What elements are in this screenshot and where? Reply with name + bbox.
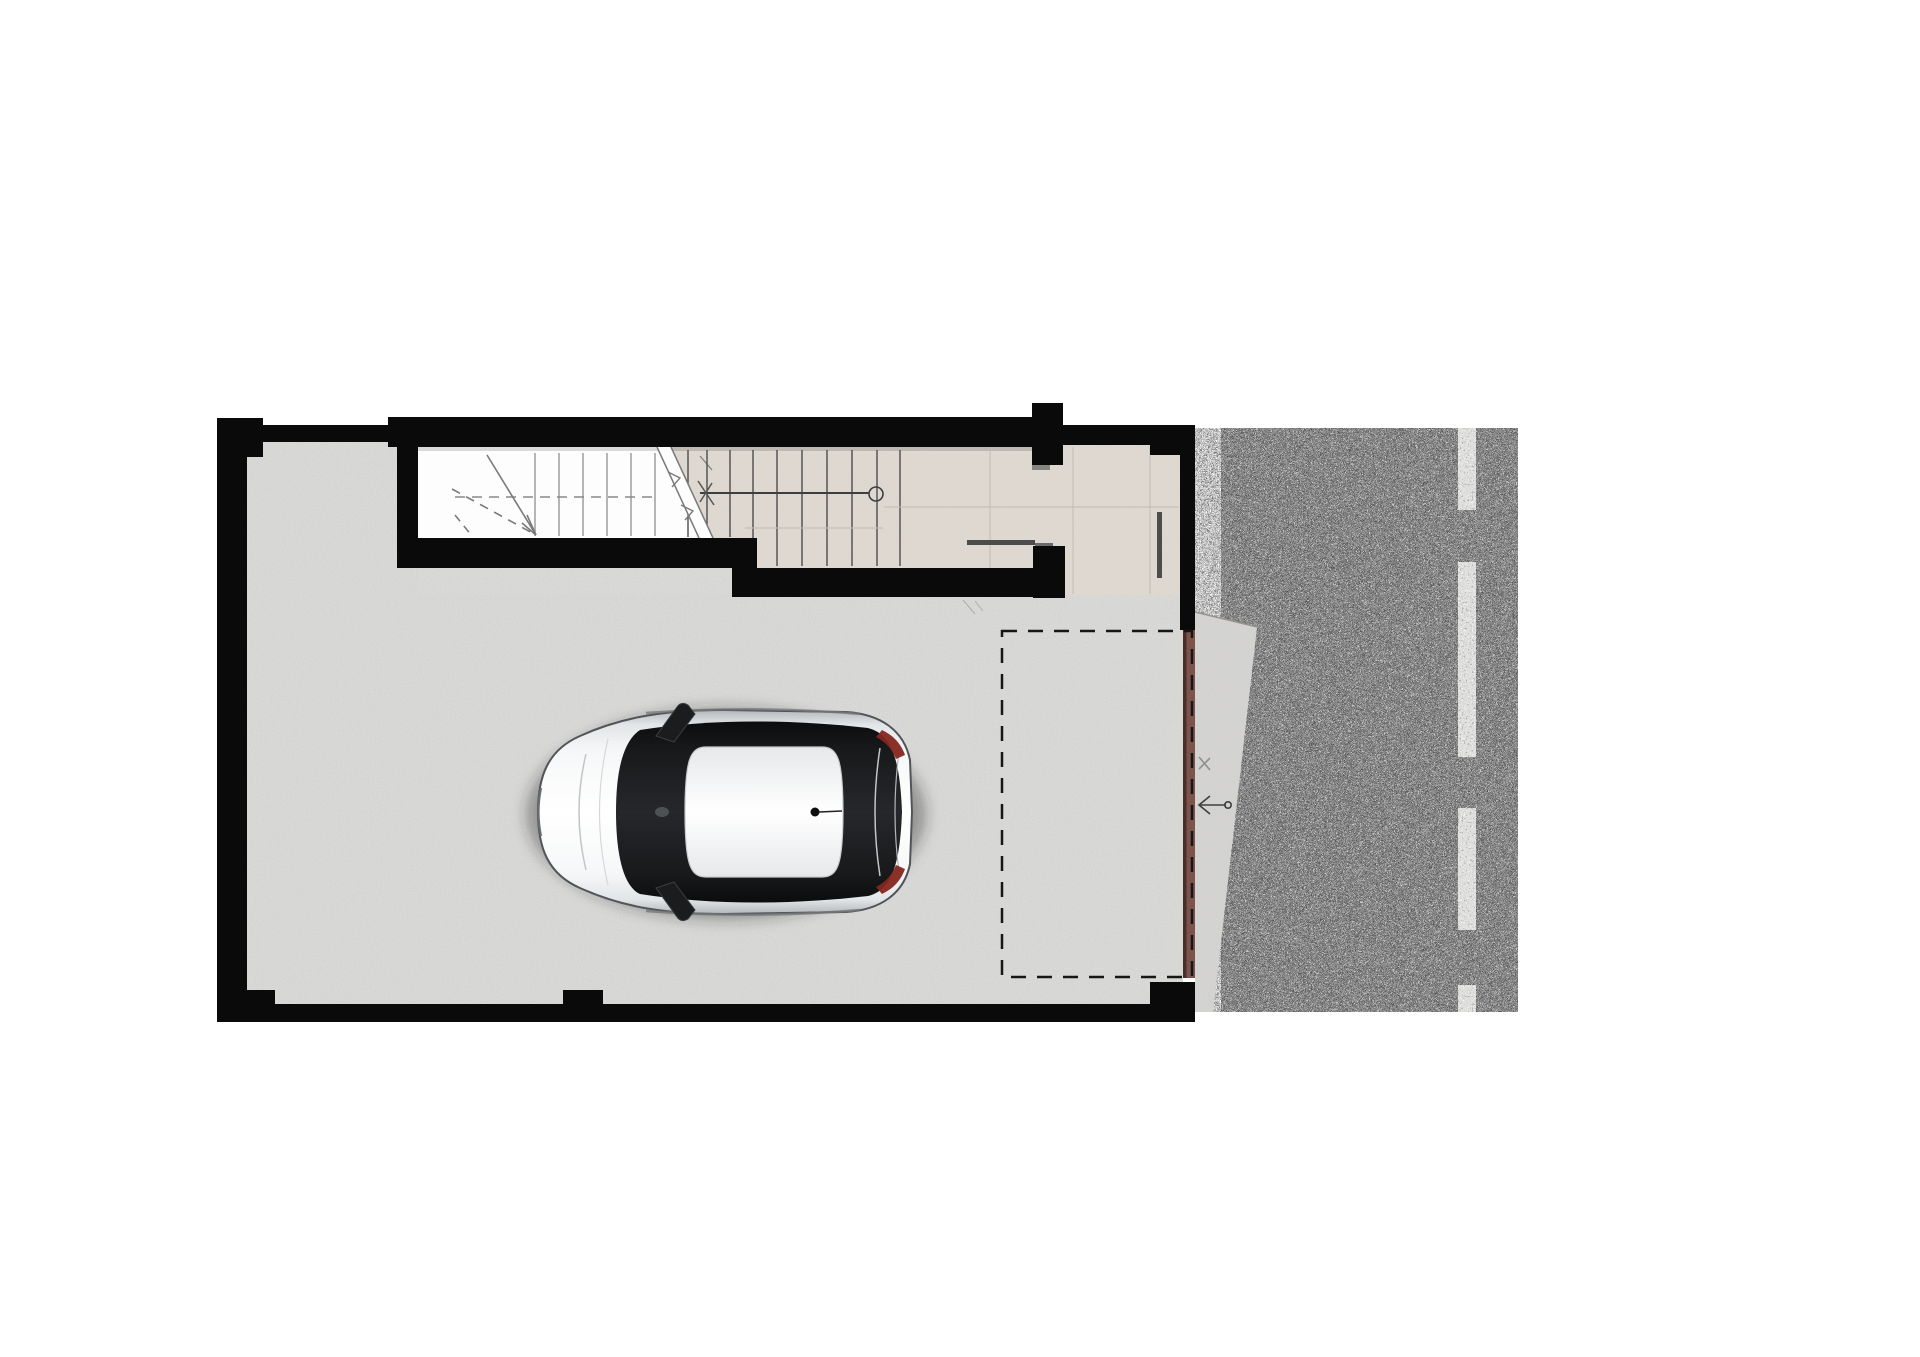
lane-dash [1458,985,1476,1012]
wall-bottom-notch-1 [245,990,275,1004]
wall-corner-top-left [217,418,263,457]
wall-entry-top [1063,425,1195,445]
road [1195,428,1518,1012]
wall-stair-bottom-upper [397,538,757,568]
entry-threshold-bar [967,540,1035,545]
wall-bottom [217,1004,1195,1022]
lane-dash [1458,808,1476,930]
wall-bottom-right-block [1150,982,1195,1022]
wall-top-thin [263,425,388,442]
wall-stair-bottom-lower [732,568,1035,597]
pilaster-shadow [1032,465,1050,470]
lane-dash [1458,562,1476,757]
car-antenna-base [811,808,820,817]
wall-bottom-notch-2 [563,990,603,1004]
entry-door-leaf [1157,512,1162,578]
wall-left [217,418,247,1022]
garage-door-edge [1183,630,1187,978]
wall-top-main [388,417,1032,447]
car-antenna-rod [819,811,842,812]
floor-plan-canvas [0,0,1920,1357]
car [526,703,926,920]
lane-dash [1458,428,1476,510]
car-rearview-mirror [655,807,669,817]
top-wall-shadow [418,447,1032,451]
floor-plan-drawing [0,0,1920,1357]
wall-entry-pier [1033,546,1065,598]
wall-right [1180,425,1195,630]
wall-pilaster-top [1032,403,1063,465]
